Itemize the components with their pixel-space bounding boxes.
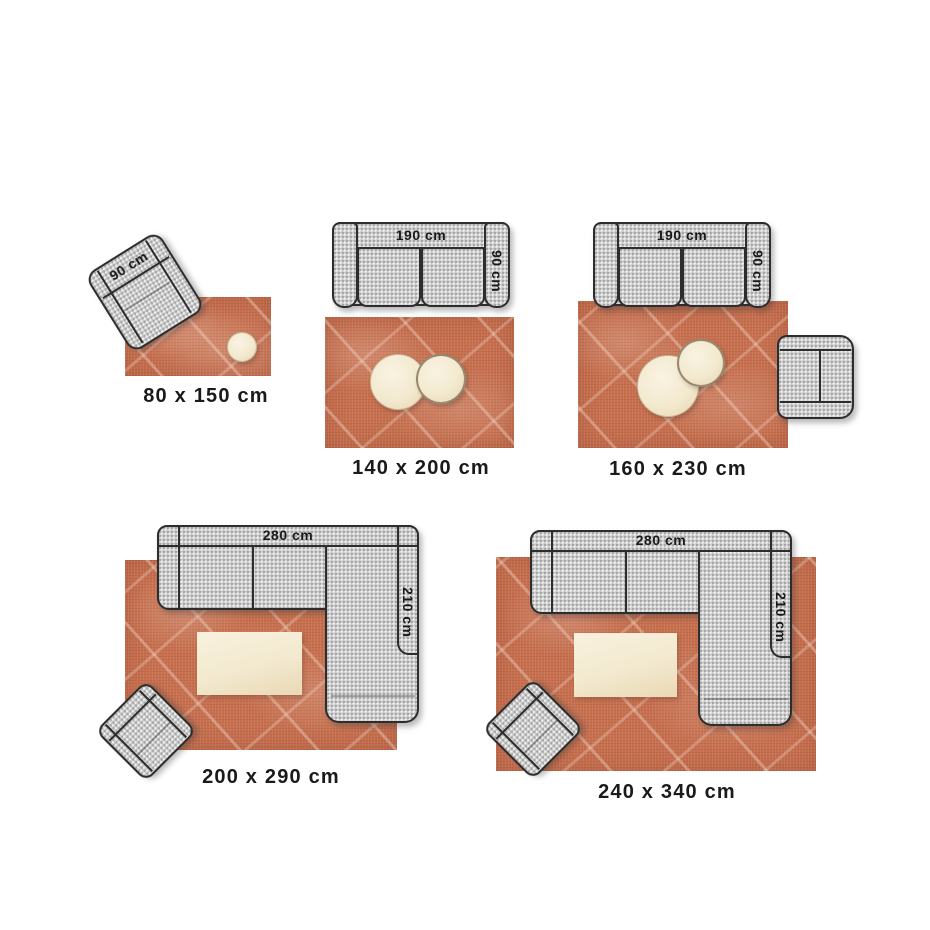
corner-sofa-seat-divider <box>625 552 627 612</box>
sofa-depth-label: 210 cm <box>773 592 789 642</box>
corner-sofa: 280 cm 210 cm <box>530 530 792 726</box>
corner-sofa-back-line <box>532 550 790 552</box>
size-caption: 240 x 340 cm <box>557 781 777 804</box>
rug-size-guide-canvas: 90 cm 80 x 150 cm 190 cm 90 cm 140 x 200… <box>0 0 930 930</box>
scene-240x340: 280 cm 210 cm 240 x 340 cm <box>0 0 930 930</box>
sofa-width-label: 280 cm <box>550 532 772 548</box>
chaise-front-line <box>704 698 788 700</box>
